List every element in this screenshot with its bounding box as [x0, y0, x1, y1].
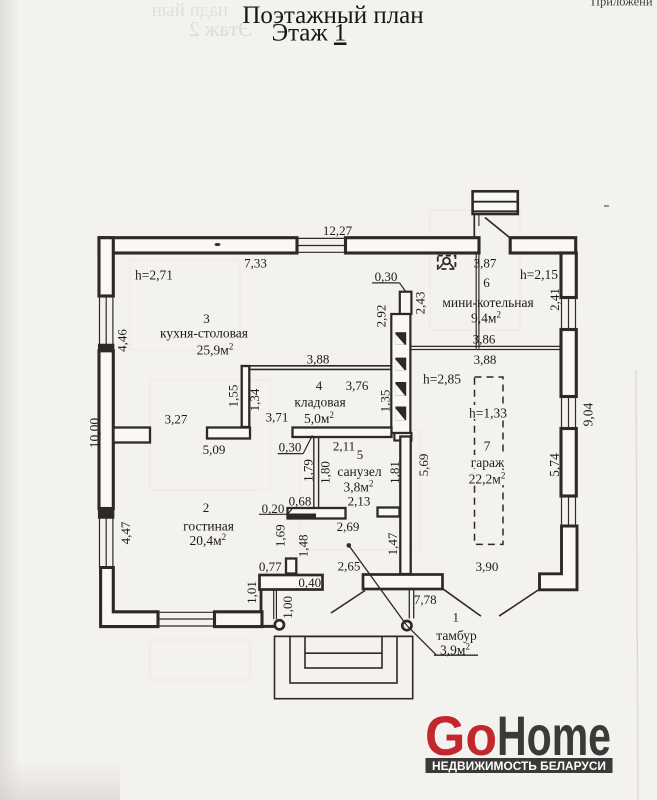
svg-text:2,11: 2,11	[333, 439, 355, 454]
svg-text:h=2,85: h=2,85	[423, 372, 461, 387]
svg-text:4,46: 4,46	[115, 329, 130, 352]
svg-text:1: 1	[452, 610, 459, 625]
svg-text:тамбур: тамбур	[436, 628, 477, 643]
svg-text:20,4м2: 20,4м2	[189, 532, 226, 548]
svg-text:3,27: 3,27	[165, 412, 188, 427]
svg-text:Home: Home	[497, 704, 611, 767]
svg-text:7,33: 7,33	[244, 256, 267, 271]
svg-text:1,80: 1,80	[318, 461, 333, 484]
svg-text:3,88: 3,88	[474, 352, 497, 367]
svg-text:3,87: 3,87	[474, 256, 497, 271]
svg-text:санузел: санузел	[337, 464, 381, 479]
svg-text:h=2,71: h=2,71	[135, 268, 173, 283]
svg-text:3: 3	[203, 311, 210, 326]
svg-text:0,20: 0,20	[262, 501, 285, 516]
svg-text:25,9м2: 25,9м2	[197, 342, 234, 358]
svg-text:4: 4	[316, 378, 323, 393]
svg-text:4,47: 4,47	[118, 521, 133, 544]
svg-text:1,69: 1,69	[272, 524, 287, 547]
svg-text:2,92: 2,92	[374, 305, 389, 328]
svg-text:5: 5	[357, 447, 364, 462]
svg-text:12,27: 12,27	[323, 223, 353, 238]
svg-text:2,43: 2,43	[413, 292, 428, 315]
svg-text:1,47: 1,47	[385, 532, 400, 555]
svg-text:0,40: 0,40	[298, 575, 321, 590]
svg-text:НЕДВИЖИМОСТЬ БЕЛАРУСИ: НЕДВИЖИМОСТЬ БЕЛАРУСИ	[432, 761, 606, 773]
svg-text:3,76: 3,76	[346, 378, 369, 393]
svg-text:кухня-столовая: кухня-столовая	[160, 326, 248, 341]
svg-text:3,90: 3,90	[476, 559, 499, 574]
svg-text:3,86: 3,86	[473, 332, 496, 347]
svg-text:2,41: 2,41	[547, 288, 562, 311]
svg-text:6: 6	[483, 275, 490, 290]
svg-text:1,01: 1,01	[244, 581, 259, 604]
svg-text:0,30: 0,30	[375, 269, 398, 284]
svg-text:2,69: 2,69	[337, 519, 360, 534]
svg-text:1,35: 1,35	[378, 390, 393, 413]
svg-text:5,74: 5,74	[547, 453, 562, 477]
svg-text:h=1,33: h=1,33	[469, 406, 507, 421]
svg-text:2: 2	[203, 500, 210, 515]
svg-text:1,00: 1,00	[280, 596, 295, 619]
svg-text:22,2м2: 22,2м2	[469, 471, 506, 487]
svg-text:мини-котельная: мини-котельная	[442, 295, 533, 310]
svg-text:7: 7	[484, 439, 491, 454]
svg-text:3,71: 3,71	[266, 410, 289, 425]
svg-text:1,79: 1,79	[301, 459, 316, 482]
svg-text:1,48: 1,48	[296, 535, 311, 558]
svg-text:Этаж 1: Этаж 1	[272, 20, 347, 47]
svg-text:1,34: 1,34	[247, 388, 262, 411]
svg-text:3,88: 3,88	[307, 352, 330, 367]
svg-text:9,04: 9,04	[581, 402, 596, 426]
svg-text:7,78: 7,78	[414, 592, 437, 607]
svg-text:Go: Go	[425, 704, 497, 767]
svg-text:2,13: 2,13	[348, 494, 371, 509]
svg-text:гостиная: гостиная	[183, 519, 234, 534]
svg-text:Приложени: Приложени	[591, 0, 653, 9]
svg-text:0,68: 0,68	[289, 494, 312, 509]
svg-text:10,00: 10,00	[87, 418, 102, 449]
svg-text:кладовая: кладовая	[294, 395, 345, 410]
svg-text:5,69: 5,69	[416, 454, 431, 477]
svg-text:1,55: 1,55	[226, 385, 241, 408]
svg-text:1,81: 1,81	[387, 461, 402, 484]
svg-text:h=2,15: h=2,15	[520, 267, 558, 282]
svg-text:гараж: гараж	[471, 455, 505, 470]
svg-text:5,09: 5,09	[203, 442, 226, 457]
svg-text:0,30: 0,30	[279, 440, 302, 455]
svg-text:0,77: 0,77	[259, 559, 282, 574]
svg-text:2,65: 2,65	[338, 559, 361, 574]
